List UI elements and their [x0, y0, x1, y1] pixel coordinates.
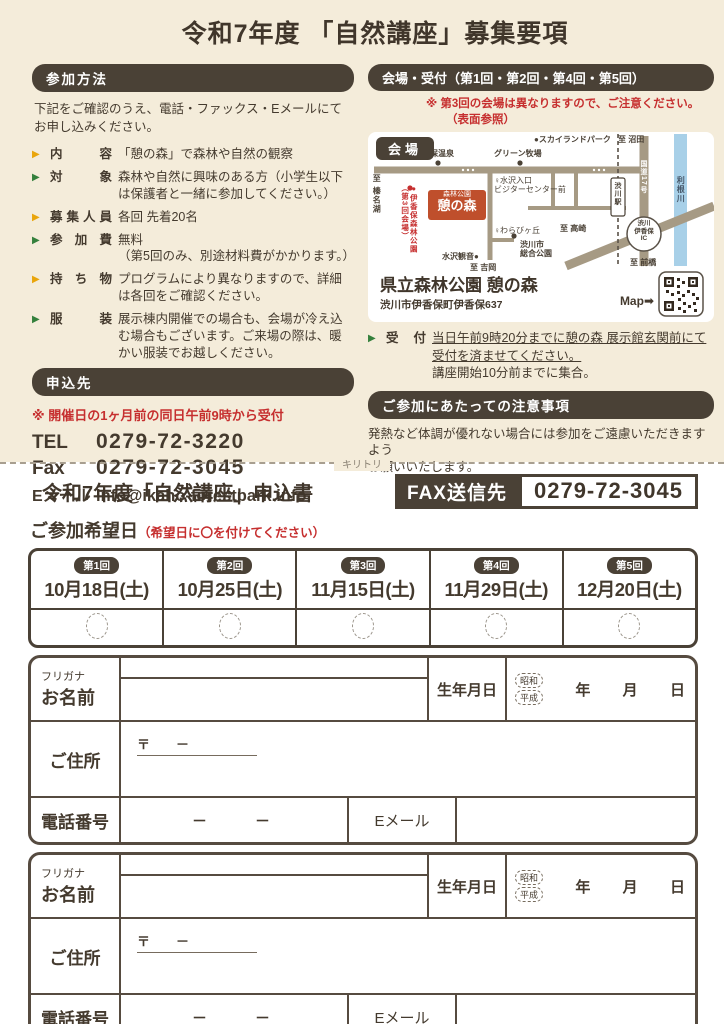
item-label: 募集人員: [50, 209, 112, 226]
map-label: 渋川市 総合公園: [520, 240, 552, 258]
method-item-capacity: ▶ 募集人員 各回 先着20名: [32, 209, 354, 226]
reception-underlined-text: 当日午前9時20分までに憩の森 展示館玄関前にて受付を済ませてください。: [432, 331, 706, 363]
applicant-form-block-1: フリガナ お名前 生年月日 昭和 平成 年 月 日 ご住所: [28, 655, 698, 845]
day-label: 日: [638, 679, 685, 700]
venue-map: 会場: [368, 132, 714, 322]
address-label: ご住所: [31, 919, 121, 993]
venue-note: ※ 第3回の会場は異なりますので、ご注意ください。 （表面参照）: [426, 97, 714, 128]
item-label: 持ち物: [50, 271, 112, 305]
map-label: 利根川: [676, 176, 685, 203]
name-field: [121, 855, 429, 917]
method-item-target: ▶ 対象 森林や自然に興味のある方（小学生以下は保護者と一緒に参加してください。…: [32, 169, 354, 203]
application-section: 令和7年度「自然講座」申込書 FAX送信先 0279-72-3045 ご参加希望…: [0, 464, 724, 1024]
session-column-4: 第4回11月29日(土): [431, 551, 564, 645]
month-label: 月: [590, 876, 637, 897]
method-column: 参加方法 下記をご確認のうえ、電話・ファックス・Eメールにて お申し込みください…: [32, 64, 354, 508]
triangle-bullet-icon: ▶: [32, 234, 44, 266]
session-round-badge: 第4回: [474, 557, 519, 574]
cut-line: キリトリ: [0, 462, 724, 464]
map-label: 水沢観音●: [442, 252, 479, 261]
map-label: 至 吉岡: [470, 263, 496, 272]
session-column-2: 第2回10月25日(土): [164, 551, 297, 645]
era-heisei: 平成: [515, 887, 543, 902]
birthdate-field: 昭和 平成 年 月 日: [507, 855, 695, 917]
month-label: 月: [590, 679, 637, 700]
map-label: 至 榛名湖: [372, 174, 381, 213]
reception-plain-text: 講座開始10分前までに集合。: [432, 366, 596, 380]
session-date: 12月20日(土): [564, 576, 695, 602]
map-label: グリーン牧場: [494, 149, 542, 158]
furigana-divider: [121, 677, 427, 679]
name-label: お名前: [41, 881, 119, 907]
postal-code-line: 〒 －: [137, 931, 257, 953]
triangle-bullet-icon: ▶: [32, 211, 44, 226]
map-label: 至 沼田: [618, 135, 644, 144]
item-text: 森林や自然に興味のある方（小学生以下は保護者と一緒に参加してください。）: [118, 169, 354, 203]
mark-circle: [86, 613, 108, 639]
flyer-page: 令和7年度 「自然講座」募集要項 参加方法 下記をご確認のうえ、電話・ファックス…: [0, 0, 724, 1024]
date-heading: ご参加希望日 （希望日に〇を付けてください）: [30, 517, 698, 543]
mark-circle: [352, 613, 374, 639]
year-label: 年: [543, 679, 590, 700]
method-item-fee: ▶ 参加費 無料 （第5回のみ、別途材料費がかかります。）: [32, 232, 354, 266]
triangle-bullet-icon: ▶: [32, 273, 44, 305]
address-label: ご住所: [31, 722, 121, 796]
email-label: Eメール: [349, 995, 457, 1024]
session-round-badge: 第1回: [74, 557, 119, 574]
method-item-content: ▶ 内容 「憩の森」で森林や自然の観察: [32, 146, 354, 163]
era-showa: 昭和: [515, 870, 543, 885]
day-label: 日: [638, 876, 685, 897]
venue-note-line2: （表面参照）: [426, 113, 714, 129]
applicant-form-block-2: フリガナ お名前 生年月日 昭和 平成 年 月 日 ご住所: [28, 852, 698, 1024]
session-round-badge: 第5回: [607, 557, 652, 574]
map-label: ●伊香保森林公園 （第3回会場）: [400, 184, 417, 254]
session-date: 10月25日(土): [164, 576, 295, 602]
session-column-5: 第5回12月20日(土): [564, 551, 695, 645]
venue-header: 会場・受付（第1回・第2回・第4回・第5回）: [368, 64, 714, 91]
map-label: 至 高崎: [560, 224, 586, 233]
era-showa: 昭和: [515, 673, 543, 688]
item-label: 対象: [50, 169, 112, 203]
page-title: 令和7年度 「自然講座」募集要項: [32, 14, 718, 50]
mark-circle: [219, 613, 241, 639]
map-venue-marker: 森林公園 憩の森: [428, 190, 486, 220]
triangle-bullet-icon: ▶: [32, 148, 44, 163]
name-label: お名前: [41, 684, 119, 710]
venue-note-line1: ※ 第3回の会場は異なりますので、ご注意ください。: [426, 98, 699, 110]
postal-code-line: 〒 －: [137, 734, 257, 756]
map-label-ic: 渋川 伊香保 IC: [630, 220, 658, 242]
venue-name-row: 県立森林公園 憩の森 渋川市伊香保町伊香保637 Map➡: [368, 270, 714, 322]
reception-label: 受付: [386, 330, 426, 383]
triangle-bullet-icon: ▶: [368, 332, 380, 383]
tel-line: TEL 0279-72-3220: [32, 430, 354, 454]
session-date: 11月15日(土): [297, 576, 428, 602]
phone-field: － －: [121, 995, 349, 1024]
mark-circle: [618, 613, 640, 639]
method-header: 参加方法: [32, 64, 354, 92]
fax-destination-label: FAX送信先: [395, 474, 519, 509]
item-text: 無料 （第5回のみ、別途材料費がかかります。）: [118, 232, 354, 266]
method-item-clothing: ▶ 服装 展示棟内開催での場合も、会場が冷え込む場合もございます。ご来場の際は、…: [32, 311, 354, 362]
birthdate-label: 生年月日: [429, 658, 507, 720]
address-field: 〒 －: [121, 722, 695, 796]
email-label: Eメール: [349, 798, 457, 842]
item-label: 参加費: [50, 232, 112, 266]
map-venue-badge: 会場: [376, 137, 434, 160]
session-column-1: 第1回10月18日(土): [31, 551, 164, 645]
item-text: 「憩の森」で森林や自然の観察: [118, 146, 354, 163]
furigana-divider: [121, 874, 427, 876]
triangle-bullet-icon: ▶: [32, 313, 44, 362]
tel-label: TEL: [32, 432, 96, 454]
map-venue-marker-main: 憩の森: [428, 199, 486, 213]
map-label: ♀水沢入口 ビジターセンター前: [494, 176, 566, 194]
session-round-badge: 第3回: [341, 557, 386, 574]
reception-item: ▶ 受付 当日午前9時20分までに憩の森 展示館玄関前にて受付を済ませてください…: [368, 330, 714, 383]
item-text: 各回 先着20名: [118, 209, 354, 226]
item-label: 内容: [50, 146, 112, 163]
birthdate-field: 昭和 平成 年 月 日: [507, 658, 695, 720]
date-heading-main: ご参加希望日: [30, 517, 138, 543]
apply-to-note: ※ 開催日の1ヶ月前の同日午前9時から受付: [32, 405, 354, 424]
session-column-3: 第3回11月15日(土): [297, 551, 430, 645]
application-title: 令和7年度「自然講座」申込書: [42, 477, 313, 506]
triangle-bullet-icon: ▶: [32, 171, 44, 203]
method-intro: 下記をご確認のうえ、電話・ファックス・Eメールにて お申し込みください。: [34, 101, 352, 136]
session-round-badge: 第2回: [207, 557, 252, 574]
map-label: 至 前橋: [630, 258, 656, 267]
cut-line-label: キリトリ: [334, 456, 390, 471]
tel-number: 0279-72-3220: [96, 430, 245, 454]
map-label-station: 渋川駅: [613, 182, 621, 206]
item-text: プログラムにより異なりますので、詳細は各回をご確認ください。: [118, 271, 354, 305]
map-label: 国道17号: [639, 160, 647, 194]
caution-text: 発熱など体調が優れない場合には参加をご遠慮いただきますよう お願いいたします。: [368, 426, 714, 477]
item-label: 服装: [50, 311, 112, 362]
item-text: 展示棟内開催での場合も、会場が冷え込む場合もございます。ご来場の際は、暖かい服装…: [118, 311, 354, 362]
method-item-belongings: ▶ 持ち物 プログラムにより異なりますので、詳細は各回をご確認ください。: [32, 271, 354, 305]
era-heisei: 平成: [515, 690, 543, 705]
session-date: 11月29日(土): [431, 576, 562, 602]
info-section: 令和7年度 「自然講座」募集要項 参加方法 下記をご確認のうえ、電話・ファックス…: [0, 0, 724, 462]
year-label: 年: [543, 876, 590, 897]
email-field: [457, 995, 695, 1024]
qr-code: [658, 271, 704, 317]
phone-label: 電話番号: [31, 798, 121, 842]
furigana-label: フリガナ: [41, 865, 119, 881]
date-heading-note: （希望日に〇を付けてください）: [138, 522, 325, 541]
venue-name: 県立森林公園 憩の森: [380, 276, 538, 296]
email-field: [457, 798, 695, 842]
birthdate-label: 生年月日: [429, 855, 507, 917]
map-label: ♀わらびヶ丘: [494, 226, 540, 235]
furigana-label: フリガナ: [41, 668, 119, 684]
fax-destination: FAX送信先 0279-72-3045: [395, 474, 698, 509]
session-date: 10月18日(土): [31, 576, 162, 602]
mark-circle: [485, 613, 507, 639]
phone-label: 電話番号: [31, 995, 121, 1024]
map-pointer-label: Map➡: [620, 294, 654, 308]
caution-header: ご参加にあたっての注意事項: [368, 391, 714, 419]
map-label: ●スカイランドパーク: [534, 135, 611, 144]
name-field: [121, 658, 429, 720]
apply-to-header: 申込先: [32, 368, 354, 396]
fax-destination-number: 0279-72-3045: [519, 474, 698, 509]
session-date-table: 第1回10月18日(土) 第2回10月25日(土) 第3回11月15日(土) 第…: [28, 548, 698, 648]
venue-address: 渋川市伊香保町伊香保637: [380, 297, 538, 312]
phone-field: － －: [121, 798, 349, 842]
venue-column: 会場・受付（第1回・第2回・第4回・第5回） ※ 第3回の会場は異なりますので、…: [368, 64, 714, 508]
address-field: 〒 －: [121, 919, 695, 993]
